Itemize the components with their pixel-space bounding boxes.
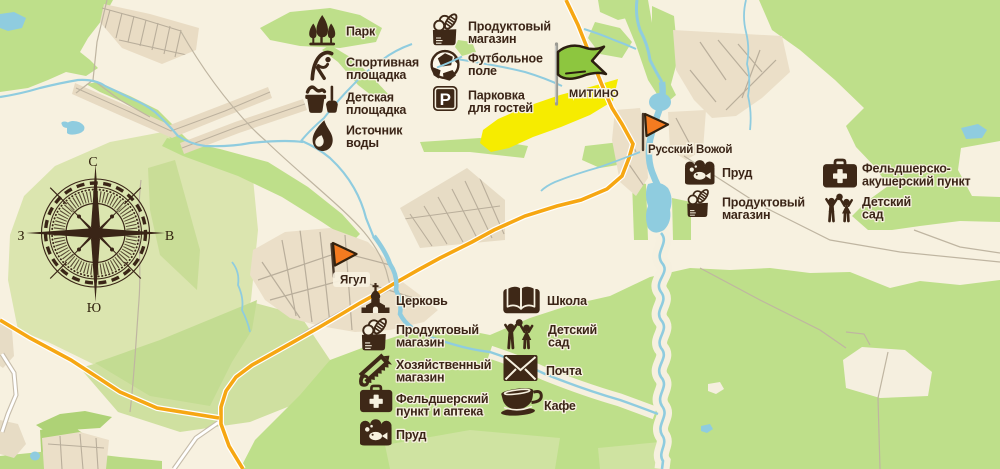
svg-text:С: С bbox=[88, 155, 97, 170]
svg-text:З: З bbox=[17, 229, 24, 244]
svg-text:Почта: Почта bbox=[546, 364, 583, 378]
svg-text:Парк: Парк bbox=[346, 25, 376, 39]
svg-text:Ягул: Ягул bbox=[340, 275, 367, 287]
svg-text:Русский Вожой: Русский Вожой bbox=[648, 144, 732, 156]
svg-text:Парковкадля гостей: Парковкадля гостей bbox=[468, 89, 533, 116]
svg-text:МИТИНО: МИТИНО bbox=[569, 88, 619, 100]
svg-text:Ю: Ю bbox=[87, 301, 101, 316]
svg-text:P: P bbox=[440, 90, 451, 109]
svg-text:Школа: Школа bbox=[547, 294, 588, 308]
svg-text:В: В bbox=[165, 229, 174, 244]
svg-text:Кафе: Кафе bbox=[544, 399, 576, 413]
svg-text:Церковь: Церковь bbox=[396, 294, 448, 308]
svg-text:Пруд: Пруд bbox=[722, 166, 752, 180]
svg-text:Фельдшерскийпункт и аптека: Фельдшерскийпункт и аптека bbox=[396, 392, 488, 419]
svg-text:Пруд: Пруд bbox=[396, 428, 426, 442]
